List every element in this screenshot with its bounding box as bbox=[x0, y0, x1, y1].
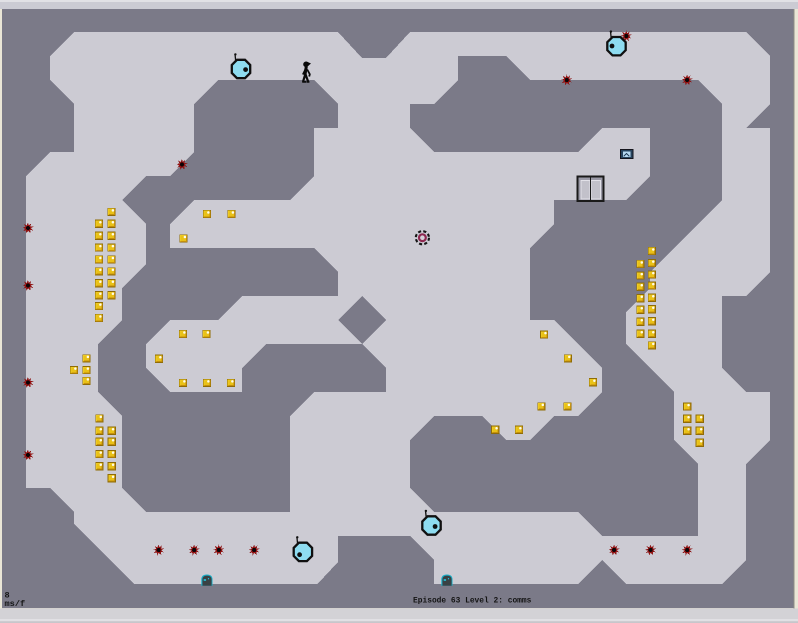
svg-text:ms/f: ms/f bbox=[5, 599, 26, 609]
svg-text:Episode 63 Level 2: comms: Episode 63 Level 2: comms bbox=[413, 597, 532, 606]
